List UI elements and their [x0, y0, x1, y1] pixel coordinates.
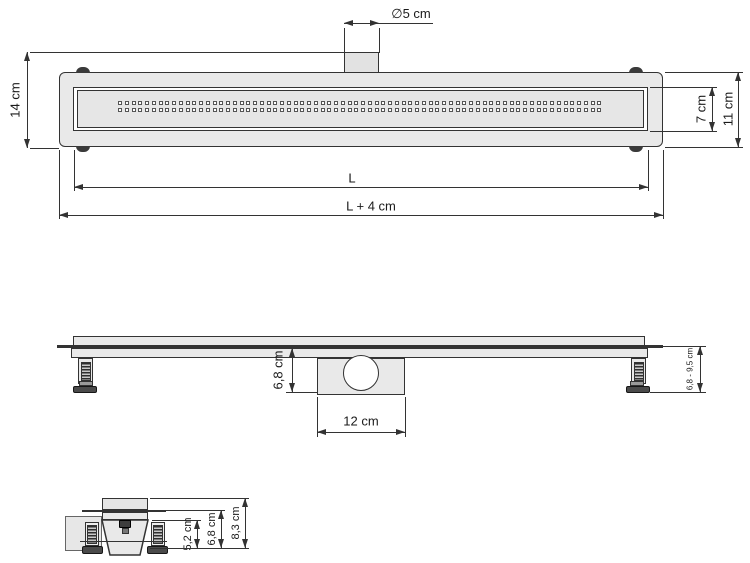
ext-line — [150, 548, 249, 549]
arrowhead — [194, 520, 200, 529]
grate-end — [102, 498, 148, 510]
arrowhead — [218, 510, 224, 519]
center-screw-head — [119, 520, 131, 528]
dim-label: 5,2 cm — [182, 517, 194, 550]
ext-line — [150, 498, 249, 499]
ext-line — [166, 510, 225, 511]
arrowhead — [194, 539, 200, 548]
dim-label: 8,3 cm — [230, 506, 242, 539]
technical-drawing-linear-drain: ∅5 cm 14 cm 7 cm — [0, 0, 750, 563]
center-screw-stem — [122, 528, 129, 534]
dim-label: 6,8 cm — [206, 512, 218, 545]
arrowhead — [242, 498, 248, 507]
bracket-base-line — [80, 541, 167, 542]
arrowhead — [242, 539, 248, 548]
arrowhead — [218, 539, 224, 548]
end-view-section: 5,2 cm 6,8 cm 8,3 cm — [0, 0, 750, 563]
foot-pad — [82, 546, 103, 554]
